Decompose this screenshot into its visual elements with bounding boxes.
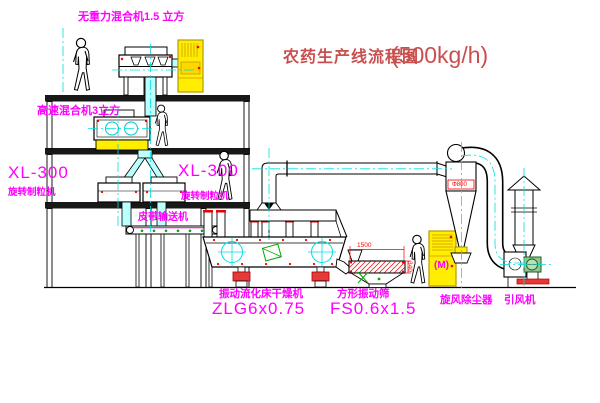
label-high-speed-mixer: 高速混合机3立方 [37, 106, 120, 117]
rotary-valve [455, 247, 467, 253]
label-cabinet-motor: (M) [434, 261, 449, 271]
control-cabinet-1 [178, 40, 203, 92]
label-granulator-right: 旋转制粒机 [181, 192, 229, 202]
label-xl300-left: XL-300 [8, 164, 69, 181]
label-belt-conveyor: 皮带输送机 [138, 213, 188, 223]
fluid-bed-dryer [203, 210, 352, 287]
control-cabinet-2 [429, 231, 456, 286]
diagram-canvas: 无重力混合机1.5 立方 农药生产线流程图 (500kg/h) 高速混合机3立方… [0, 0, 600, 403]
cyclone-top-elbow [448, 145, 465, 162]
page-title-capacity: (500kg/h) [391, 44, 488, 67]
label-granulator-left: 旋转制粒机 [8, 188, 56, 198]
dim-sieve-length: 1500 [357, 243, 371, 250]
label-sieve-model: FS0.6x1.5 [330, 300, 417, 317]
label-dryer-model: ZLG6x0.75 [212, 300, 305, 317]
induced-draft-fan [504, 252, 549, 287]
person-figure [74, 38, 90, 90]
gravity-free-mixer [119, 47, 180, 116]
dryer-hood [250, 210, 336, 221]
dim-sieve-height: 340 [406, 261, 413, 272]
label-fan: 引风机 [504, 295, 536, 306]
exhaust-duct [257, 161, 449, 211]
person-figure [155, 105, 167, 145]
fan-base [517, 279, 549, 284]
label-xl300-right: XL-300 [178, 162, 239, 179]
label-sieve-name: 方形振动筛 [337, 289, 390, 300]
label-dryer-name: 振动流化床干燥机 [219, 289, 303, 300]
dim-cyclone-diameter: Φ800 [452, 182, 467, 188]
label-top-mixer: 无重力混合机1.5 立方 [78, 12, 184, 23]
vibrating-sieve [344, 246, 411, 288]
label-cyclone: 旋风除尘器 [440, 295, 493, 306]
person-figure [410, 235, 425, 283]
